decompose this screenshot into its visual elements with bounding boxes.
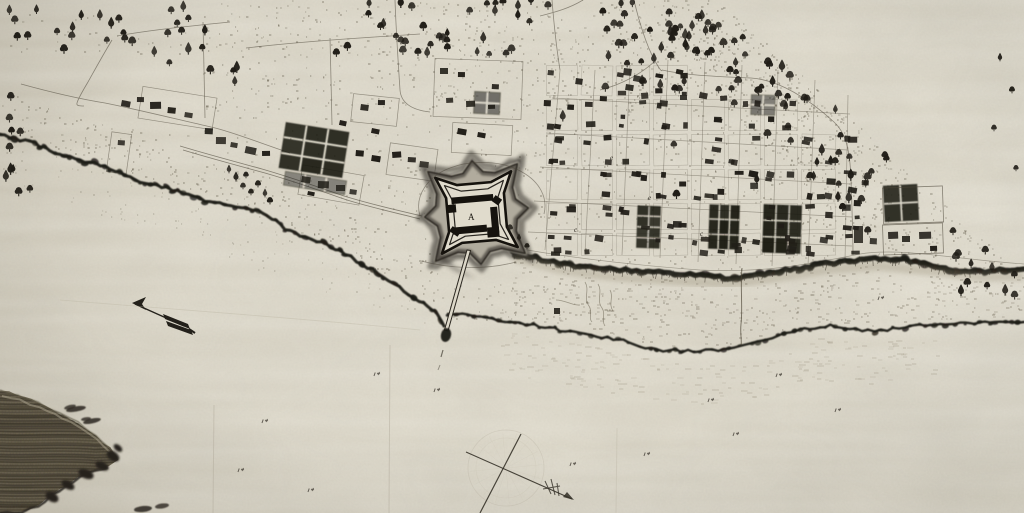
- svg-text:A: A: [468, 212, 475, 222]
- svg-text:e: e: [610, 154, 613, 162]
- svg-text:e: e: [648, 194, 651, 202]
